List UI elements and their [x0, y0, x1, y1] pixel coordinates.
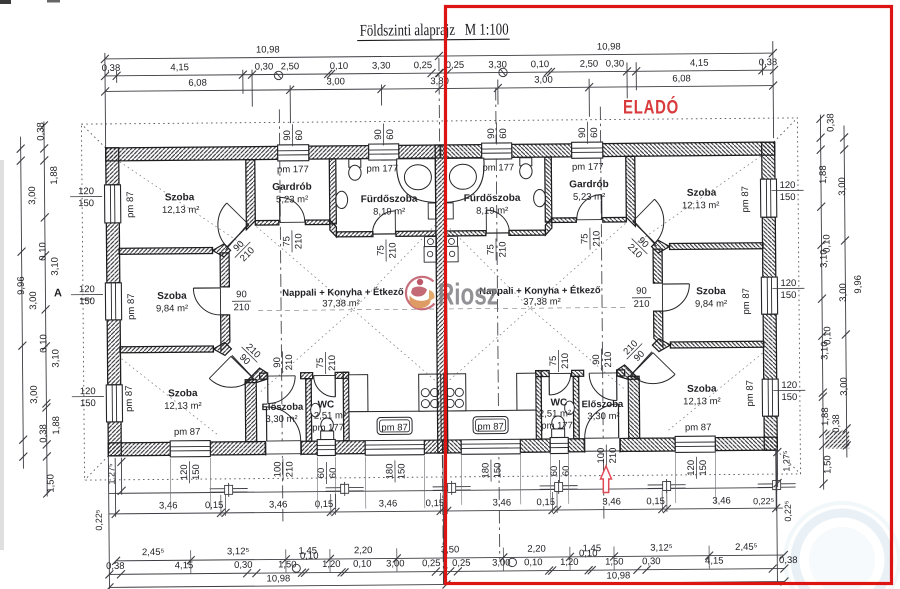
svg-text:6,08: 6,08	[672, 73, 691, 84]
svg-text:Előszoba: Előszoba	[262, 402, 305, 413]
svg-text:60: 60	[589, 127, 600, 138]
svg-text:12,13 m²: 12,13 m²	[682, 200, 720, 211]
svg-text:9,96: 9,96	[16, 276, 27, 295]
svg-text:5,23 m²: 5,23 m²	[276, 194, 308, 205]
svg-text:2,50: 2,50	[281, 61, 300, 72]
svg-text:210: 210	[560, 353, 571, 369]
svg-text:12,13 m²: 12,13 m²	[683, 396, 721, 407]
svg-text:0,10: 0,10	[330, 61, 349, 72]
svg-text:150: 150	[191, 464, 202, 480]
svg-text:0,38: 0,38	[38, 424, 49, 443]
svg-text:3,00: 3,00	[28, 291, 39, 310]
svg-text:2,20: 2,20	[354, 545, 373, 556]
svg-text:75: 75	[579, 233, 590, 244]
svg-text:210: 210	[234, 302, 250, 313]
svg-text:210: 210	[634, 299, 650, 310]
svg-text:Fürdőszoba: Fürdőszoba	[464, 193, 521, 204]
svg-text:Szoba: Szoba	[168, 388, 198, 399]
svg-text:pm 177: pm 177	[277, 164, 309, 175]
svg-text:Szoba: Szoba	[687, 188, 717, 199]
svg-text:75: 75	[486, 244, 497, 255]
svg-text:pm 177: pm 177	[312, 422, 344, 433]
svg-text:100: 100	[272, 461, 283, 477]
svg-text:150: 150	[492, 463, 503, 479]
svg-text:120: 120	[179, 464, 190, 480]
svg-text:60: 60	[294, 130, 305, 141]
svg-text:90: 90	[636, 286, 647, 297]
svg-text:120: 120	[80, 386, 96, 397]
svg-text:10,98: 10,98	[256, 44, 280, 55]
svg-text:2,50: 2,50	[580, 59, 599, 70]
svg-text:12,13 m²: 12,13 m²	[162, 205, 200, 216]
svg-text:4,15: 4,15	[690, 58, 709, 69]
svg-text:pm 87: pm 87	[126, 293, 137, 320]
svg-text:3,00: 3,00	[534, 75, 553, 86]
svg-text:90: 90	[272, 357, 283, 368]
svg-text:3,46: 3,46	[493, 497, 512, 508]
svg-text:4,15: 4,15	[170, 62, 189, 73]
svg-text:60: 60	[385, 129, 396, 140]
svg-text:3,00: 3,00	[837, 177, 848, 196]
svg-text:10,98: 10,98	[606, 570, 630, 581]
svg-text:90: 90	[373, 129, 384, 140]
svg-text:0,38: 0,38	[779, 555, 798, 566]
svg-text:0,25: 0,25	[422, 558, 441, 569]
svg-text:150: 150	[698, 460, 709, 476]
svg-text:90: 90	[591, 354, 602, 365]
svg-text:3,00: 3,00	[386, 558, 405, 569]
svg-text:pm 87: pm 87	[381, 422, 408, 433]
svg-text:120: 120	[781, 380, 797, 391]
svg-text:90: 90	[486, 128, 497, 139]
svg-text:150: 150	[781, 392, 797, 403]
svg-text:3,46: 3,46	[712, 495, 731, 506]
svg-text:2,20: 2,20	[527, 544, 546, 555]
svg-text:Gardrób: Gardrób	[272, 182, 312, 193]
svg-text:9,84 m²: 9,84 m²	[156, 303, 188, 314]
svg-text:10,98: 10,98	[597, 41, 621, 52]
svg-text:pm 87: pm 87	[685, 422, 712, 433]
svg-text:3,30 m²: 3,30 m²	[587, 411, 619, 422]
svg-text:3,10: 3,10	[50, 349, 61, 368]
svg-text:Fürdőszoba: Fürdőszoba	[361, 194, 418, 205]
svg-text:10,98: 10,98	[266, 573, 290, 584]
svg-text:3,10: 3,10	[819, 341, 830, 360]
svg-text:Szoba: Szoba	[165, 192, 195, 203]
svg-text:0,22⁵: 0,22⁵	[753, 496, 775, 506]
svg-text:60: 60	[328, 468, 339, 479]
svg-text:120: 120	[780, 278, 796, 289]
svg-text:pm 87: pm 87	[741, 288, 752, 315]
svg-text:0,10: 0,10	[524, 557, 543, 568]
svg-text:0,38: 0,38	[106, 561, 125, 572]
svg-text:150: 150	[780, 290, 796, 301]
svg-text:3,00: 3,00	[838, 283, 849, 302]
svg-text:0,30: 0,30	[606, 58, 625, 69]
svg-text:WC: WC	[318, 399, 335, 410]
svg-text:pm 87: pm 87	[125, 191, 136, 218]
svg-text:3,46: 3,46	[159, 500, 178, 511]
svg-text:Szoba: Szoba	[696, 286, 726, 297]
svg-text:1,88: 1,88	[49, 166, 60, 185]
svg-text:150: 150	[78, 198, 94, 209]
svg-text:75: 75	[281, 236, 292, 247]
svg-text:210: 210	[293, 233, 304, 249]
svg-text:210: 210	[591, 231, 602, 247]
svg-text:60: 60	[498, 128, 509, 139]
svg-text:0,38: 0,38	[825, 113, 836, 132]
svg-text:pm 177: pm 177	[482, 162, 514, 173]
svg-text:pm 87: pm 87	[174, 427, 201, 438]
svg-text:0,30: 0,30	[642, 556, 661, 567]
svg-text:0,10: 0,10	[531, 59, 550, 70]
svg-text:210: 210	[284, 461, 295, 477]
svg-text:9,84 m²: 9,84 m²	[695, 299, 727, 310]
svg-text:pm 177: pm 177	[541, 420, 573, 431]
svg-text:0,38: 0,38	[831, 414, 842, 433]
svg-text:90: 90	[236, 289, 247, 300]
svg-text:180: 180	[480, 463, 491, 479]
svg-text:3,00: 3,00	[839, 377, 850, 396]
svg-text:120: 120	[78, 186, 94, 197]
svg-text:Előszoba: Előszoba	[582, 399, 625, 410]
svg-text:8,19 m²: 8,19 m²	[373, 206, 405, 217]
svg-text:6,08: 6,08	[188, 78, 207, 89]
svg-text:75: 75	[315, 358, 326, 369]
svg-text:150: 150	[780, 192, 796, 203]
svg-text:1,88: 1,88	[818, 165, 829, 184]
svg-text:210: 210	[608, 448, 619, 464]
svg-text:Szoba: Szoba	[157, 291, 187, 302]
svg-text:4,15: 4,15	[705, 556, 724, 567]
svg-text:150: 150	[79, 296, 95, 307]
svg-text:0,22⁵: 0,22⁵	[783, 500, 793, 522]
svg-text:Gardrób: Gardrób	[569, 179, 609, 190]
svg-text:WC: WC	[551, 397, 568, 408]
svg-text:3,10: 3,10	[819, 249, 830, 268]
svg-text:0,38: 0,38	[102, 63, 121, 74]
svg-text:1,20: 1,20	[560, 557, 579, 568]
svg-text:3,00: 3,00	[29, 385, 40, 404]
svg-text:120: 120	[79, 284, 95, 295]
svg-text:37,38 m²: 37,38 m²	[322, 298, 360, 309]
svg-text:37,38 m²: 37,38 m²	[523, 296, 561, 307]
svg-text:pm 87: pm 87	[740, 186, 751, 213]
svg-text:120: 120	[780, 180, 796, 191]
svg-text:150: 150	[80, 398, 96, 409]
svg-text:0,25: 0,25	[452, 558, 471, 569]
svg-text:Földszinti alaprajz M 1:100: Földszinti alaprajz M 1:100	[360, 19, 509, 39]
svg-text:0,22⁵: 0,22⁵	[94, 509, 104, 531]
svg-text:pm 177: pm 177	[572, 162, 604, 173]
svg-text:3,30: 3,30	[372, 60, 391, 71]
svg-text:ELADÓ: ELADÓ	[623, 95, 679, 119]
svg-text:0,10: 0,10	[353, 559, 372, 570]
svg-text:3,46: 3,46	[269, 499, 288, 510]
svg-text:1,88: 1,88	[51, 416, 62, 435]
svg-text:75: 75	[548, 356, 559, 367]
svg-text:3,00: 3,00	[27, 186, 38, 205]
svg-text:pm 87: pm 87	[745, 380, 756, 407]
svg-text:A: A	[54, 287, 62, 299]
svg-text:1,27⁵: 1,27⁵	[781, 450, 791, 472]
svg-text:210: 210	[327, 355, 338, 371]
svg-text:90: 90	[577, 127, 588, 138]
svg-text:1,50: 1,50	[822, 455, 833, 474]
svg-text:1,20: 1,20	[322, 559, 341, 570]
svg-text:210: 210	[284, 354, 295, 370]
svg-text:0,38: 0,38	[759, 57, 778, 68]
svg-text:Nappali + Konyha + Étkező: Nappali + Konyha + Étkező	[282, 287, 404, 299]
svg-text:3,10: 3,10	[50, 257, 61, 276]
svg-text:1,50: 1,50	[46, 474, 57, 493]
svg-text:3,46: 3,46	[602, 496, 621, 507]
svg-text:1,88: 1,88	[820, 407, 831, 426]
svg-text:180: 180	[384, 463, 395, 479]
svg-text:0,30: 0,30	[255, 61, 274, 72]
svg-text:2,45⁵: 2,45⁵	[735, 542, 758, 553]
svg-text:Szoba: Szoba	[687, 384, 717, 395]
svg-text:0,25: 0,25	[414, 60, 433, 71]
svg-text:0,38: 0,38	[35, 122, 46, 141]
svg-text:2,45⁵: 2,45⁵	[142, 547, 165, 558]
svg-text:5,23 m²: 5,23 m²	[573, 192, 605, 203]
svg-text:pm 87: pm 87	[124, 385, 135, 412]
svg-text:2,51 m²: 2,51 m²	[539, 408, 571, 419]
svg-text:pm 87: pm 87	[477, 421, 504, 432]
svg-text:3,46: 3,46	[379, 498, 398, 509]
svg-text:3,12⁵: 3,12⁵	[650, 542, 673, 553]
svg-text:90: 90	[282, 130, 293, 141]
svg-text:0,10: 0,10	[579, 548, 598, 559]
svg-text:60: 60	[561, 466, 572, 477]
svg-text:0,25: 0,25	[446, 60, 465, 71]
svg-text:0,10: 0,10	[300, 551, 319, 562]
svg-text:0,10: 0,10	[38, 334, 49, 353]
svg-text:12,13 m²: 12,13 m²	[164, 401, 202, 412]
svg-text:2,51 m²: 2,51 m²	[314, 410, 346, 421]
svg-text:210: 210	[497, 241, 508, 257]
svg-text:0,10: 0,10	[37, 242, 48, 261]
svg-text:0,30: 0,30	[234, 560, 253, 571]
svg-text:75: 75	[376, 245, 387, 256]
svg-text:210: 210	[387, 242, 398, 258]
svg-text:8,19 m²: 8,19 m²	[476, 205, 508, 216]
svg-text:150: 150	[396, 463, 407, 479]
svg-text:3,30 m²: 3,30 m²	[265, 414, 297, 425]
svg-text:100: 100	[596, 448, 607, 464]
svg-text:210: 210	[603, 352, 614, 368]
svg-text:3,12⁵: 3,12⁵	[227, 546, 250, 557]
svg-text:120: 120	[686, 460, 697, 476]
svg-text:9,96: 9,96	[853, 275, 864, 294]
svg-text:3,00: 3,00	[326, 76, 345, 87]
svg-text:pm 177: pm 177	[366, 163, 398, 174]
svg-text:0,15: 0,15	[426, 498, 445, 509]
